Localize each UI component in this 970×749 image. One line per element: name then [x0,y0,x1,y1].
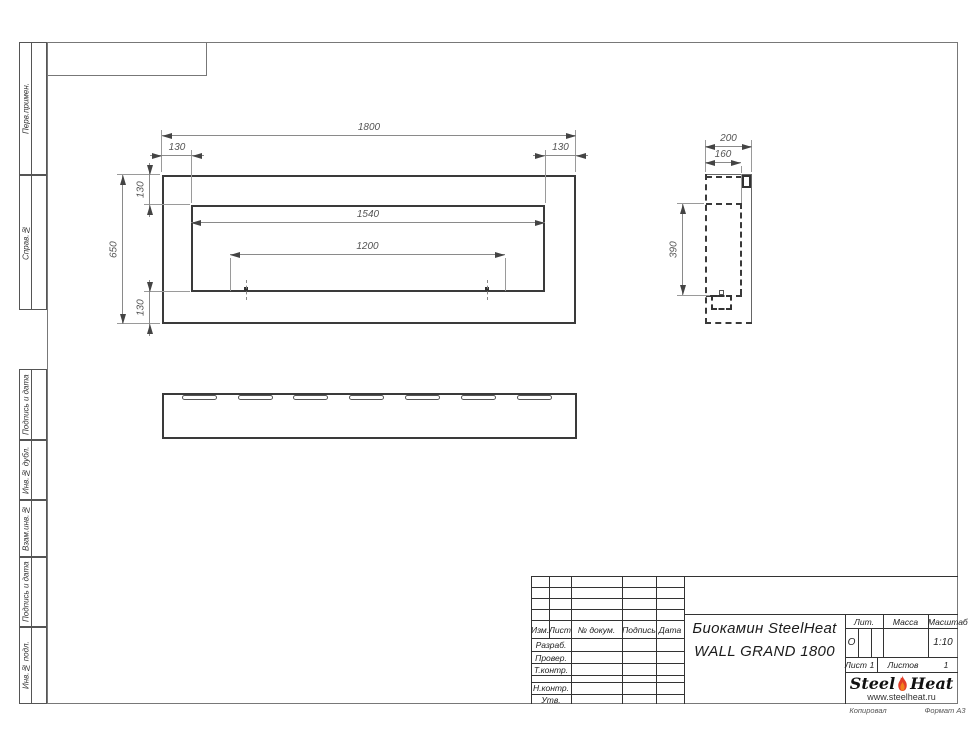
top-designation-box [47,42,207,76]
dim-front-offset-top: 130 [149,163,150,217]
dim-label: 1200 [230,241,505,253]
dim-front-offset-left: 130 [150,155,204,156]
vent-slot [517,395,552,400]
dim-label: 390 [667,204,681,295]
extension-line [741,166,742,173]
title-block-line [571,576,572,704]
lit-value: О [845,637,858,648]
side-hidden-left-edge [705,174,707,324]
drawing-sheet: Перв.примен. Справ.№ Подпись и дата Инв.… [0,0,970,749]
dim-front-height: 650 [122,175,123,324]
col-signature: Подпись [622,625,656,635]
dim-burner-width: 1200 [230,254,505,255]
margin-stamp-label: Инв.№ подл. [20,628,32,703]
doc-title-line1: Биокамин SteelHeat [684,620,845,637]
vent-slot [349,395,384,400]
title-block-line [845,672,958,673]
title-block-line [531,620,684,621]
col-list: Лист [549,625,571,635]
margin-stamp-sprav-no: Справ.№ [19,175,47,310]
margin-stamp-perv-primen: Перв.примен. [19,42,47,175]
vent-slot [461,395,496,400]
role-tkontr: Т.контр. [531,665,571,675]
vent-slot [238,395,273,400]
title-block-line [531,638,684,639]
role-nkontr: Н.контр. [531,683,571,693]
title-block-line [845,657,958,658]
margin-stamp-inv-dubl: Инв.№ дубл. [19,440,47,500]
dim-label: 160 [705,149,741,161]
title-block-line [871,628,872,657]
vent-slot [293,395,328,400]
dim-front-width: 1800 [162,135,576,136]
margin-stamp-label: Справ.№ [20,176,32,309]
role-prover: Провер. [531,653,571,663]
title-block-line [858,628,859,657]
dim-side-inner-depth: 160 [705,162,741,163]
title-block-line [622,576,623,704]
side-hidden-inner-edge [740,203,742,295]
dim-opening-width: 1540 [191,222,545,223]
vent-slot [182,395,217,400]
dim-label: 130 [134,163,148,217]
col-doc-num: № докум. [571,625,622,635]
title-block-line [531,587,684,588]
lit-label: Лит. [845,617,883,627]
title-block-line [845,628,958,629]
title-block-line [531,576,958,577]
side-burner-box [711,295,732,310]
centerline-right [487,280,488,300]
dim-label: 650 [107,175,121,324]
sheet-value: 1 [867,660,877,670]
extension-line [545,150,546,203]
dim-front-offset-right: 130 [533,155,588,156]
centerline-left [246,280,247,300]
role-utv: Утв. [531,695,571,705]
title-block-line [656,576,657,704]
margin-stamp-vzam-inv: Взам.инв.№ [19,500,47,557]
kopiroval-label: Копировал [838,706,898,715]
margin-stamp-label: Взам.инв.№ [20,501,32,556]
extension-line [505,258,506,291]
scale-value: 1:10 [928,637,958,648]
sheets-value: 1 [938,660,954,670]
title-block-line [684,576,685,704]
margin-stamp-podpis-data-1: Подпись и дата [19,369,47,440]
extension-line [677,295,710,296]
title-block-line [531,609,684,610]
margin-stamp-label: Подпись и дата [20,558,32,626]
margin-stamp-podpis-data-2: Подпись и дата [19,557,47,627]
side-hidden-bottom-edge [705,322,752,324]
side-hidden-mid-line [706,203,742,205]
role-razrab: Разраб. [531,640,571,650]
dim-label: 130 [533,142,588,154]
flame-icon [896,675,909,692]
mass-label: Масса [883,617,928,627]
dim-front-offset-bottom: 130 [149,280,150,336]
dim-label: 1800 [162,122,576,134]
dim-label: 200 [705,133,752,145]
title-block-line [877,657,878,672]
col-izm: Изм. [531,625,549,635]
logo-steel-text: Steel [850,674,895,693]
dim-side-depth: 200 [705,146,752,147]
margin-stamp-inv-podl: Инв.№ подл. [19,627,47,704]
side-burner-tab [719,290,724,295]
vent-slot [405,395,440,400]
dim-label: 1540 [191,209,545,221]
company-logo: Steel Heat [845,674,958,693]
format-label: Формат А3 [915,706,970,715]
margin-stamp-label: Инв.№ дубл. [20,441,32,499]
title-block-line [684,614,958,615]
logo-heat-text: Heat [910,674,953,693]
scale-label: Масштаб [928,617,958,627]
dim-side-inner-height: 390 [682,204,683,295]
col-date: Дата [656,625,684,635]
sheet-label: Лист [845,660,867,670]
sheets-label: Листов [883,660,923,670]
title-block-line [531,675,684,676]
title-block-line [531,598,684,599]
title-block-line [531,663,684,664]
title-block-line [531,651,684,652]
margin-stamp-label: Перв.примен. [20,43,32,174]
doc-title-line2: WALL GRAND 1800 [684,643,845,660]
side-hidden-top-line [706,176,742,178]
margin-stamp-label: Подпись и дата [20,370,32,439]
dim-label: 130 [134,280,148,336]
side-bracket-top [742,175,751,188]
logo-url: www.steelheat.ru [845,692,958,702]
dim-label: 130 [150,142,204,154]
extension-line [230,258,231,291]
